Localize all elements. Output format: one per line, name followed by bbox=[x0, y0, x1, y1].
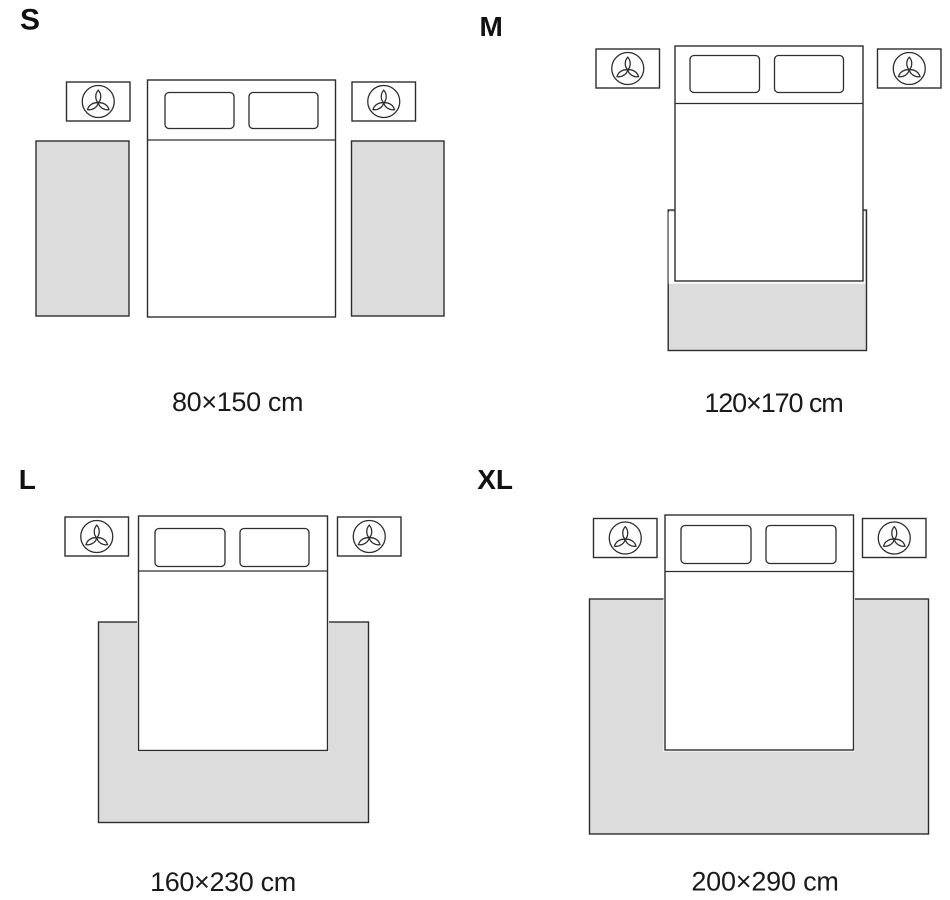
svg-text:XL: XL bbox=[477, 464, 513, 495]
svg-text:S: S bbox=[20, 3, 40, 36]
svg-text:L: L bbox=[19, 464, 36, 495]
svg-text:120×170 cm: 120×170 cm bbox=[704, 388, 842, 418]
svg-text:160×230 cm: 160×230 cm bbox=[150, 867, 296, 897]
svg-text:200×290 cm: 200×290 cm bbox=[691, 867, 838, 897]
svg-text:M: M bbox=[480, 11, 503, 42]
svg-text:80×150 cm: 80×150 cm bbox=[172, 387, 303, 417]
